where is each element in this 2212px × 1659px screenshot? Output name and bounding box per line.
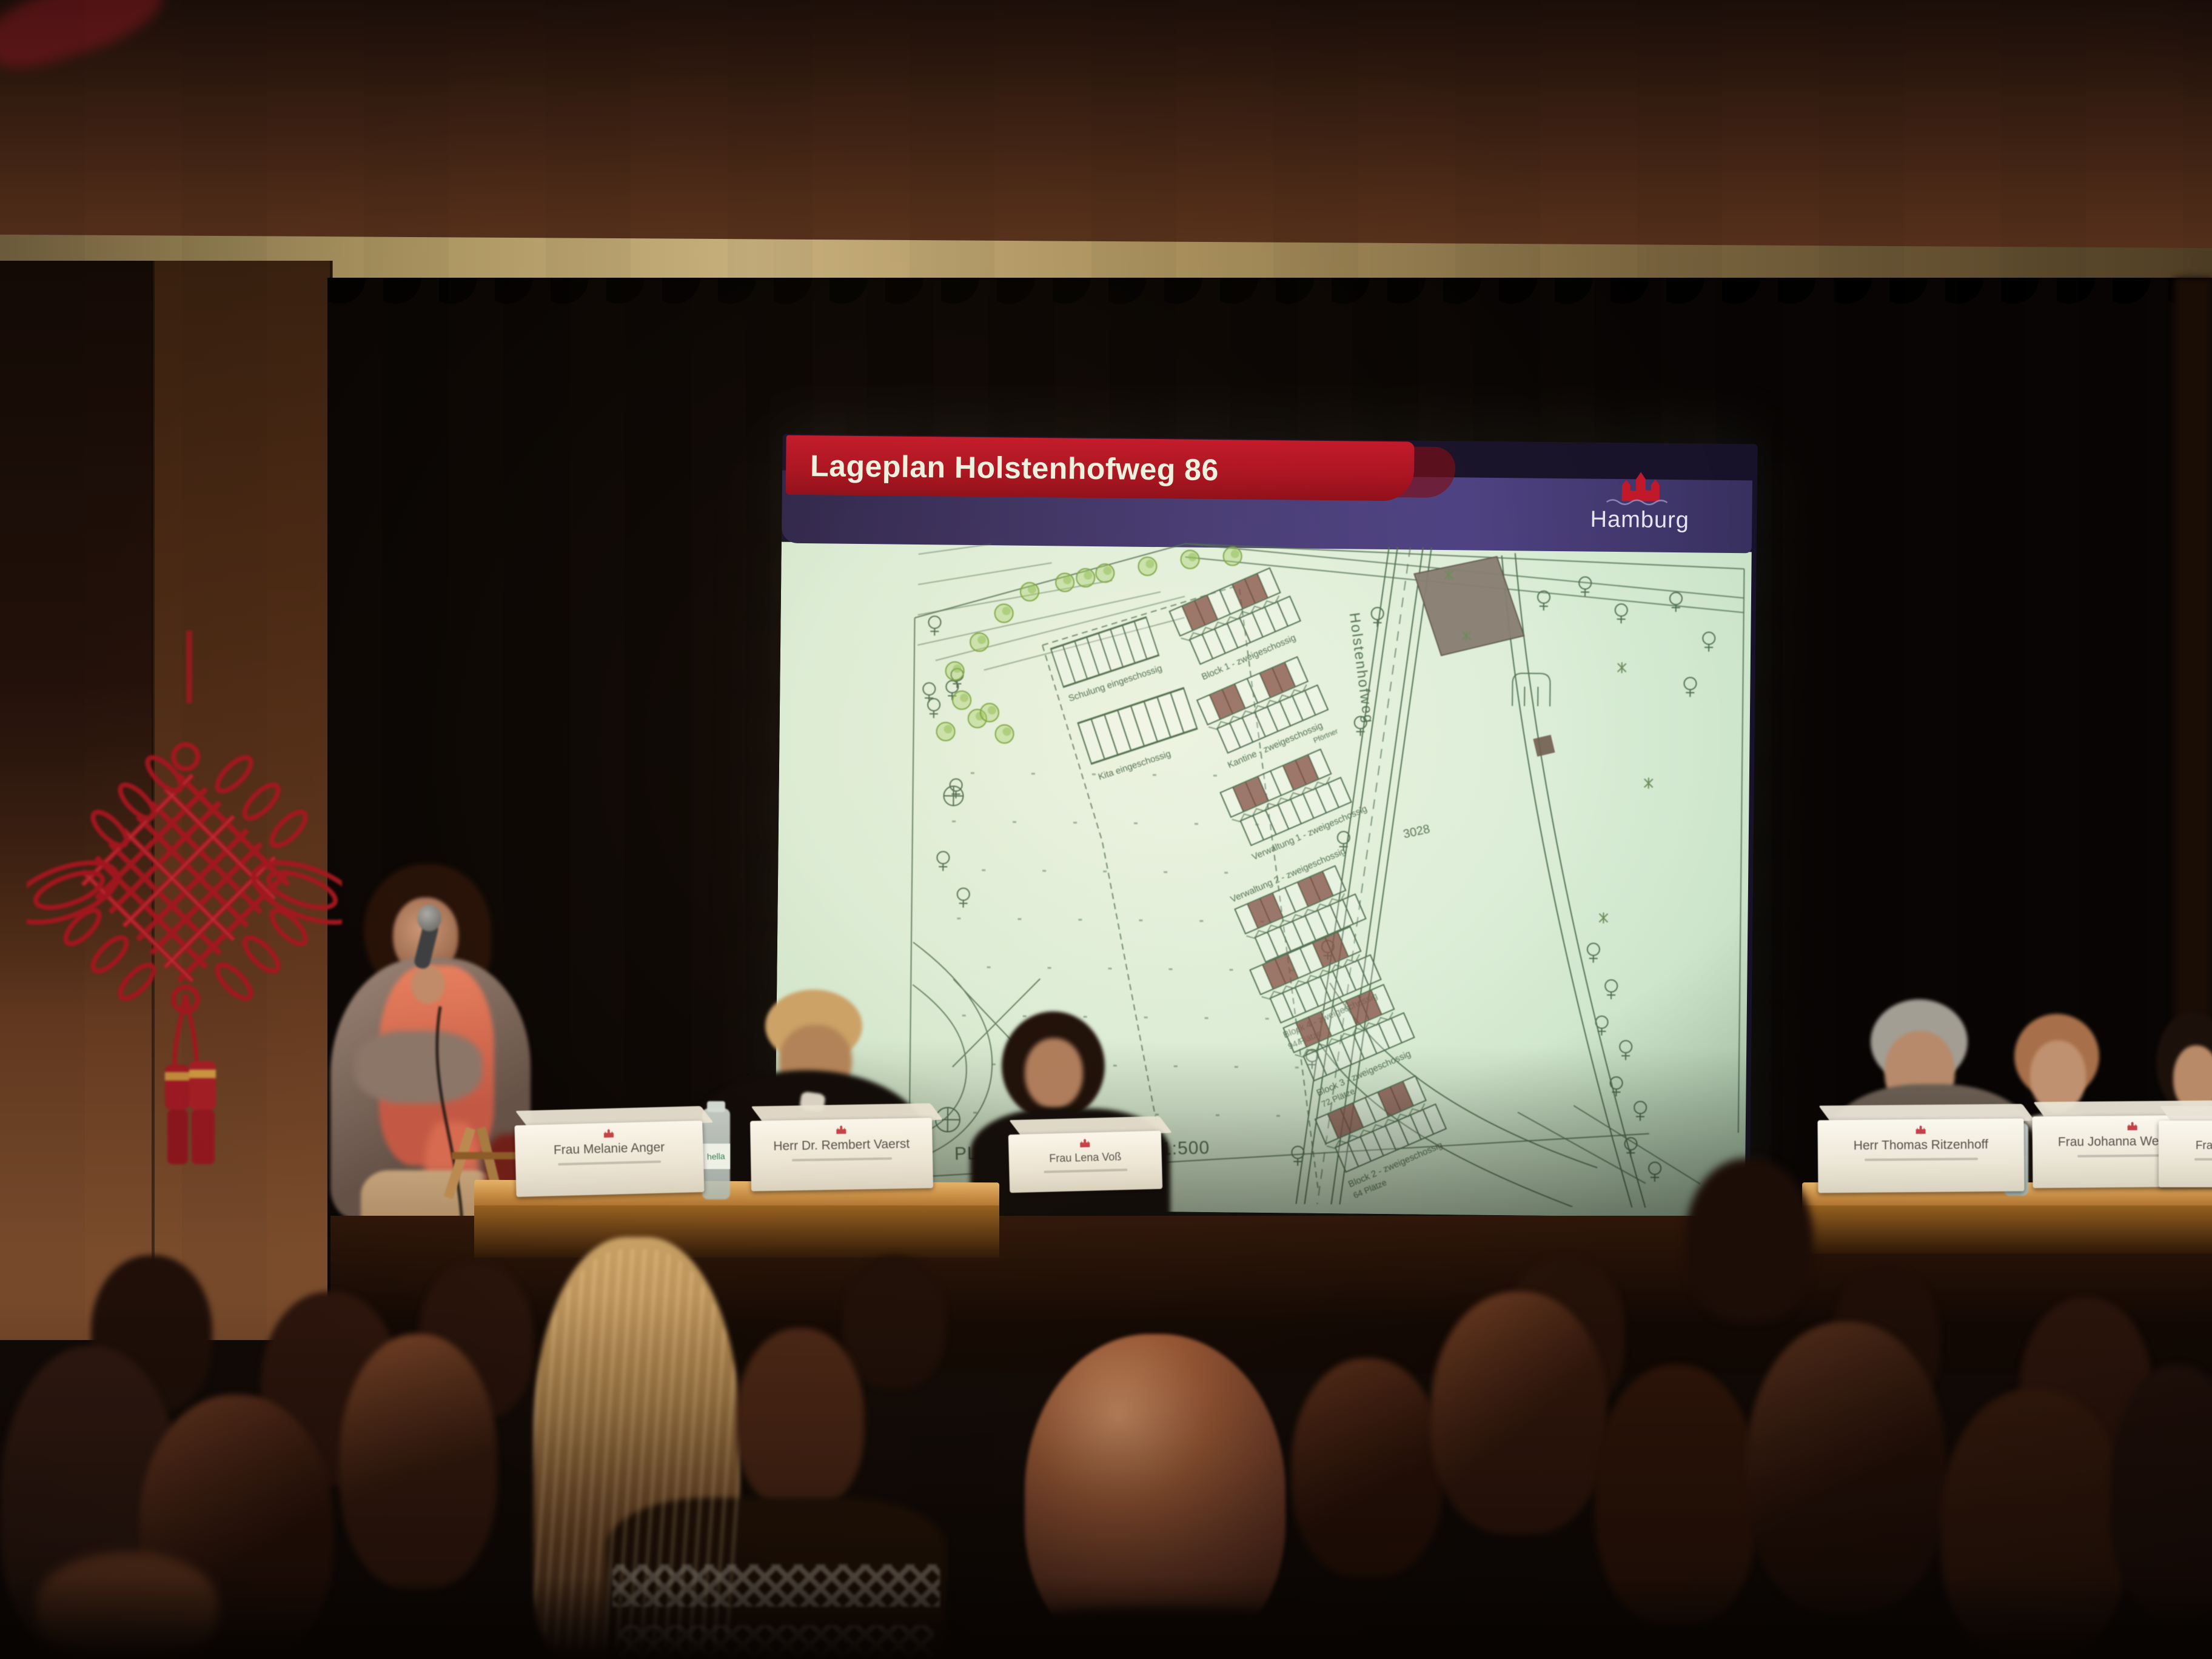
- name-card-text: Frau Melanie Anger: [554, 1141, 665, 1158]
- name-card: Frau Lena Voß: [1008, 1131, 1162, 1193]
- concrete-wall-top: [0, 0, 2212, 261]
- audience-head: [1431, 1292, 1607, 1534]
- building-schulung: Schulung eingeschossig: [1051, 617, 1164, 704]
- name-card: Herr Dr. Rembert Vaerst: [750, 1118, 933, 1191]
- panel-table-right-front: [1802, 1205, 2212, 1254]
- name-card: Herr Thomas Ritzenhoff: [1817, 1119, 2024, 1193]
- audience-head: [1746, 1322, 1946, 1613]
- name-card-subtitle-line: [1865, 1158, 1978, 1161]
- knot-tassel-cords: [175, 994, 196, 1066]
- audience-head: [843, 1255, 946, 1389]
- name-card-text: Herr Thomas Ritzenhoff: [1854, 1138, 1988, 1153]
- hamburg-castle-icon: [1570, 466, 1711, 506]
- audience-head: [737, 1328, 864, 1510]
- building-kita: Kita eingeschossig: [1078, 688, 1204, 783]
- slide-title-bar: Lageplan Holstenhofweg 86: [786, 435, 1415, 501]
- wall-edge-right: [2174, 278, 2212, 1127]
- name-card-subtitle-line: [1044, 1168, 1128, 1173]
- name-card-text: Frau Lena Voß: [1049, 1150, 1122, 1165]
- bottle-label-text: hella: [707, 1151, 725, 1161]
- curtain-valance: [327, 278, 2212, 332]
- card-castle-icon: [836, 1125, 846, 1134]
- name-card: Frau Melanie Anger: [515, 1121, 705, 1197]
- name-card: Frau Karen Vogt: [2159, 1121, 2212, 1187]
- projection-screen: Lageplan Holstenhofweg 86 Hamburg: [774, 434, 1757, 1218]
- card-castle-icon: [604, 1129, 614, 1138]
- card-castle-icon: [2128, 1122, 2137, 1130]
- bottom-shadow: [0, 1577, 2212, 1659]
- name-card-subtitle-line: [2194, 1158, 2212, 1161]
- knot-tassels: [165, 1061, 216, 1164]
- name-card-text: Herr Dr. Rembert Vaerst: [773, 1137, 910, 1154]
- audience-head: [340, 1334, 497, 1589]
- card-castle-icon: [1080, 1139, 1090, 1147]
- microphone-head: [417, 905, 441, 931]
- audience-head: [1686, 1158, 1813, 1322]
- panelist-face: [1025, 1038, 1083, 1108]
- chinese-knot-ornament: [27, 631, 342, 1164]
- slide-title: Lageplan Holstenhofweg 86: [810, 435, 1219, 500]
- name-card-subtitle-line: [558, 1161, 662, 1165]
- bottle-label: hella: [702, 1144, 730, 1169]
- panel-table-left-front: [474, 1205, 999, 1258]
- name-card-text: Frau Karen Vogt: [2196, 1139, 2212, 1153]
- card-castle-icon: [1916, 1125, 1926, 1134]
- knot-lattice: [76, 768, 295, 988]
- name-card-subtitle-line: [792, 1158, 892, 1162]
- parcel-label: 3028: [1402, 822, 1431, 841]
- audience-head: [1292, 1358, 1443, 1577]
- auditorium-photo: Lageplan Holstenhofweg 86 Hamburg: [0, 0, 2212, 1659]
